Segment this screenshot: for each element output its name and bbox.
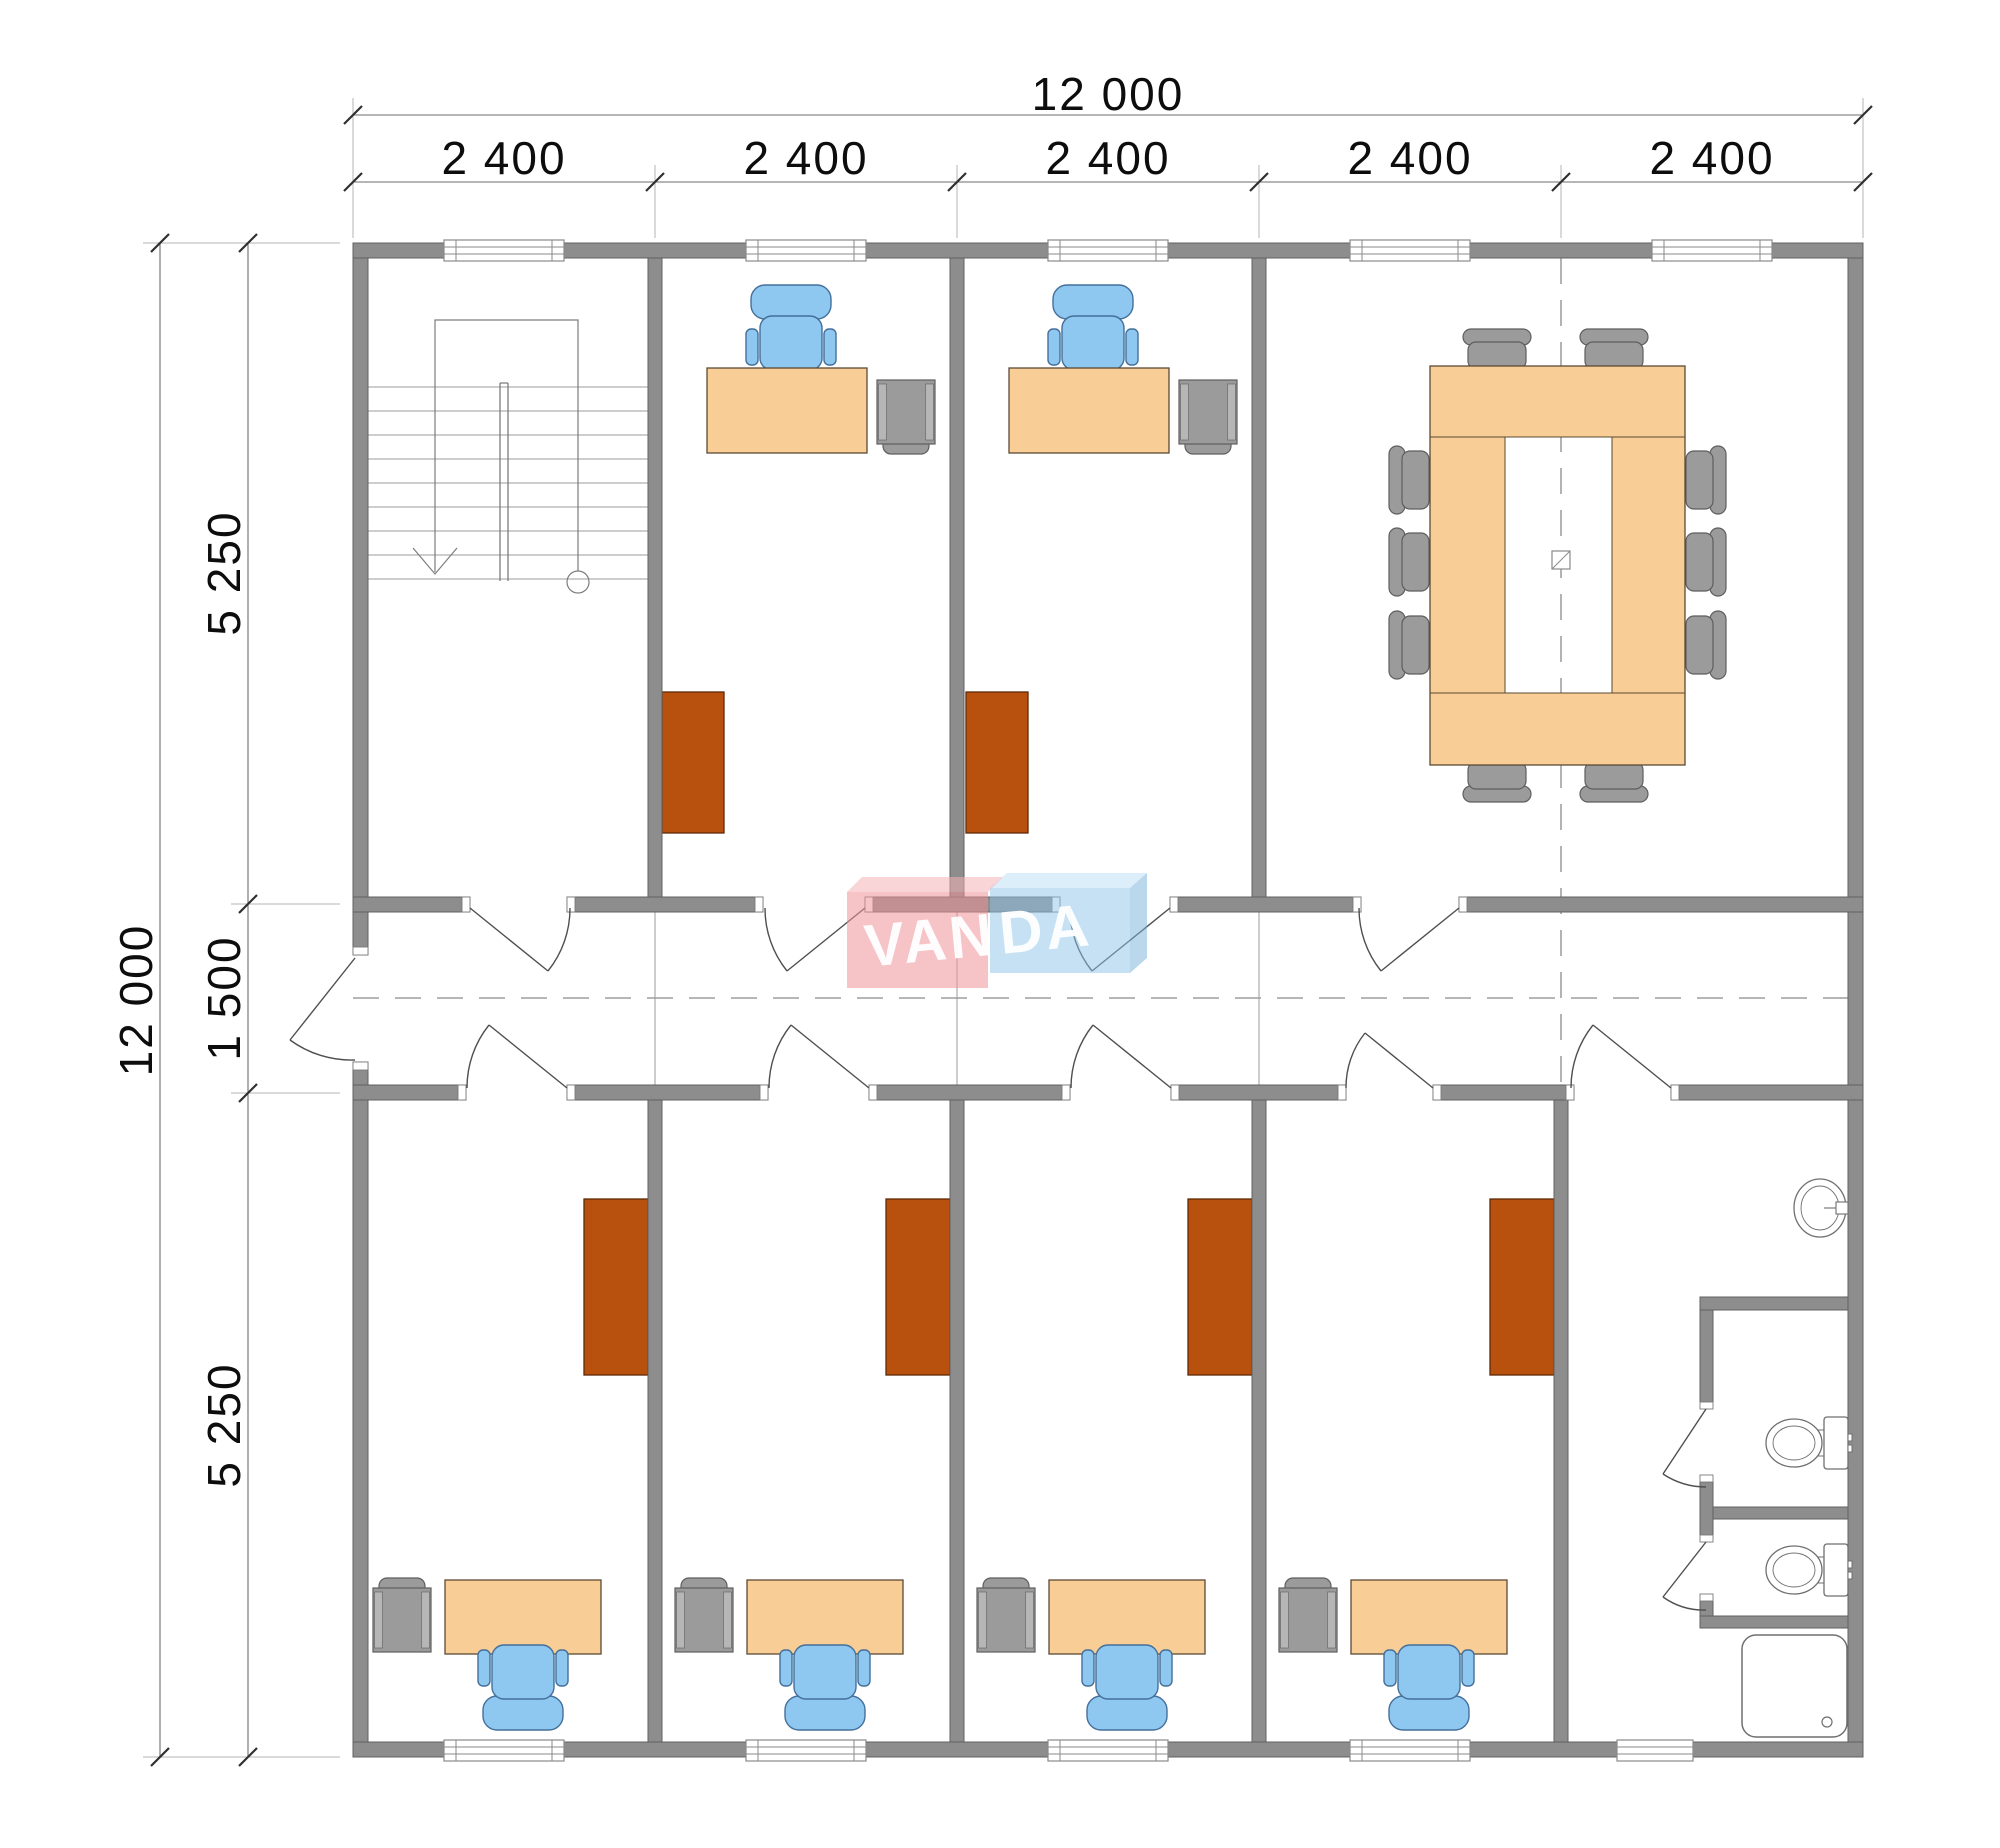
toilet: [1766, 1544, 1852, 1596]
dim-label-bay: 2 400: [441, 131, 566, 185]
dim-label-bay: 2 400: [1649, 131, 1774, 185]
conference-chair: [1686, 528, 1726, 596]
conference-chair: [1389, 528, 1429, 596]
conference-room-furniture: [1389, 329, 1726, 802]
stair-walk-line: [435, 320, 578, 572]
side-cabinet: [877, 380, 935, 454]
dim-label-row: 5 250: [197, 1362, 251, 1487]
logo-text-part1: VAN: [861, 899, 998, 980]
side-cabinet: [1179, 380, 1237, 454]
conference-chair: [1686, 446, 1726, 514]
bottom-office-3-furniture: [977, 1199, 1252, 1730]
conference-chair: [1580, 329, 1648, 369]
bottom-office-4-furniture: [1279, 1199, 1554, 1730]
wardrobe-cabinet: [886, 1199, 950, 1375]
conference-chair: [1463, 762, 1531, 802]
west-wall-lower: [353, 1062, 368, 1742]
window: [1350, 1740, 1470, 1761]
floor-plan-page: 12 000 2 400 2 400 2 400 2 400 2 400 12 …: [0, 0, 2000, 1848]
window: [746, 240, 866, 261]
dim-label-top-total: 12 000: [1032, 67, 1185, 121]
window: [1048, 1740, 1168, 1761]
office-a-furniture: [662, 285, 935, 833]
conference-chair: [1686, 611, 1726, 679]
wc-window: [1617, 1740, 1693, 1761]
desk: [1009, 368, 1169, 453]
wc-door: [1571, 1025, 1671, 1088]
side-cabinet: [675, 1578, 733, 1652]
wardrobe-cabinet: [966, 692, 1028, 833]
west-wall-upper: [353, 258, 368, 955]
dim-label-bay: 2 400: [1347, 131, 1472, 185]
bottom-office-1-door: [467, 1025, 567, 1088]
shower-tray: [1742, 1635, 1847, 1737]
bottom-office-4-door: [1346, 1033, 1433, 1088]
conference-chair: [1389, 611, 1429, 679]
dim-label-bay: 2 400: [743, 131, 868, 185]
bottom-office-3-door: [1071, 1025, 1171, 1088]
conference-chair: [1389, 446, 1429, 514]
window: [1652, 240, 1772, 261]
wardrobe-cabinet: [584, 1199, 648, 1375]
desk: [707, 368, 867, 453]
desk: [1049, 1580, 1205, 1654]
wardrobe-cabinet: [1188, 1199, 1252, 1375]
dim-label-bay: 2 400: [1045, 131, 1170, 185]
side-cabinet: [977, 1578, 1035, 1652]
office-chair: [1048, 285, 1138, 370]
conference-door: [1359, 908, 1459, 971]
office-chair: [478, 1645, 568, 1730]
dim-label-side-total: 12 000: [109, 924, 163, 1077]
side-cabinet: [373, 1578, 431, 1652]
desk: [747, 1580, 903, 1654]
bottom-office-1-furniture: [373, 1199, 648, 1730]
window: [444, 240, 564, 261]
office-b-furniture: [966, 285, 1237, 833]
office-chair: [1384, 1645, 1474, 1730]
bottom-office-2-door: [769, 1025, 869, 1088]
bottom-office-2-furniture: [675, 1199, 950, 1730]
conference-chair: [1463, 329, 1531, 369]
desk: [1351, 1580, 1507, 1654]
stair-start-circle: [567, 571, 589, 593]
entrance-door: [290, 958, 355, 1060]
toilet: [1766, 1417, 1852, 1469]
logo-text-part2: DA: [996, 890, 1095, 968]
dim-label-row: 5 250: [197, 510, 251, 635]
wardrobe-cabinet: [1490, 1199, 1554, 1375]
window: [746, 1740, 866, 1761]
office-chair: [780, 1645, 870, 1730]
window: [444, 1740, 564, 1761]
window: [1350, 240, 1470, 261]
desk: [445, 1580, 601, 1654]
stair-divider: [500, 383, 508, 581]
office-chair: [746, 285, 836, 370]
windows: [444, 240, 1772, 1761]
conference-chair: [1580, 762, 1648, 802]
east-wall: [1848, 258, 1863, 1742]
wardrobe-cabinet: [662, 692, 724, 833]
side-cabinet: [1279, 1578, 1337, 1652]
bathroom-fixtures: [1742, 1179, 1852, 1737]
sink: [1794, 1179, 1848, 1237]
staircase-door: [470, 908, 570, 971]
office-chair: [1082, 1645, 1172, 1730]
staircase: [364, 320, 648, 593]
dim-label-row: 1 500: [197, 935, 251, 1060]
floor-symbol: [1552, 551, 1570, 569]
window: [1048, 240, 1168, 261]
